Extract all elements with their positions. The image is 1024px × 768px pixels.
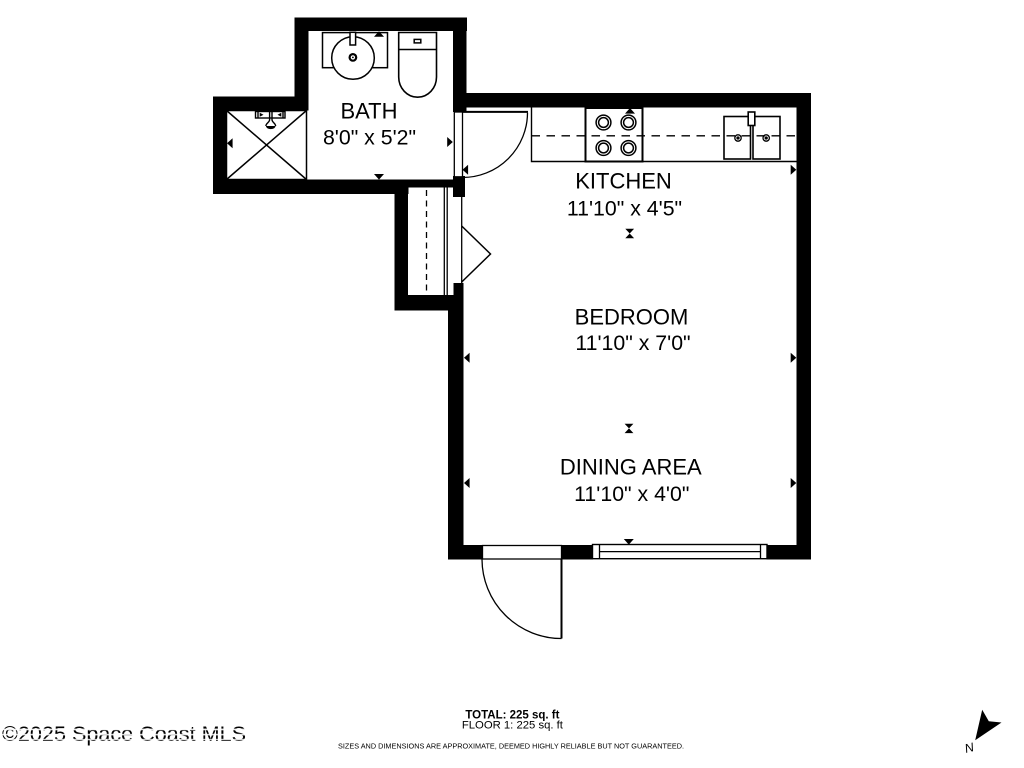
svg-text:DINING AREA: DINING AREA [560, 455, 702, 480]
svg-text:©2025 Space Coast MLS: ©2025 Space Coast MLS [2, 721, 246, 746]
svg-text:FLOOR 1: 225 sq. ft: FLOOR 1: 225 sq. ft [462, 720, 564, 732]
svg-text:11'10" x 4'0": 11'10" x 4'0" [574, 482, 689, 506]
svg-text:KITCHEN: KITCHEN [575, 169, 672, 194]
svg-text:SIZES AND DIMENSIONS ARE APPRO: SIZES AND DIMENSIONS ARE APPROXIMATE, DE… [338, 741, 684, 750]
svg-text:BATH: BATH [340, 98, 397, 123]
svg-text:11'10" x 4'5": 11'10" x 4'5" [567, 197, 682, 221]
svg-text:BEDROOM: BEDROOM [575, 304, 689, 329]
svg-text:8'0" x 5'2": 8'0" x 5'2" [323, 125, 416, 149]
svg-text:11'10" x 7'0": 11'10" x 7'0" [575, 331, 690, 355]
